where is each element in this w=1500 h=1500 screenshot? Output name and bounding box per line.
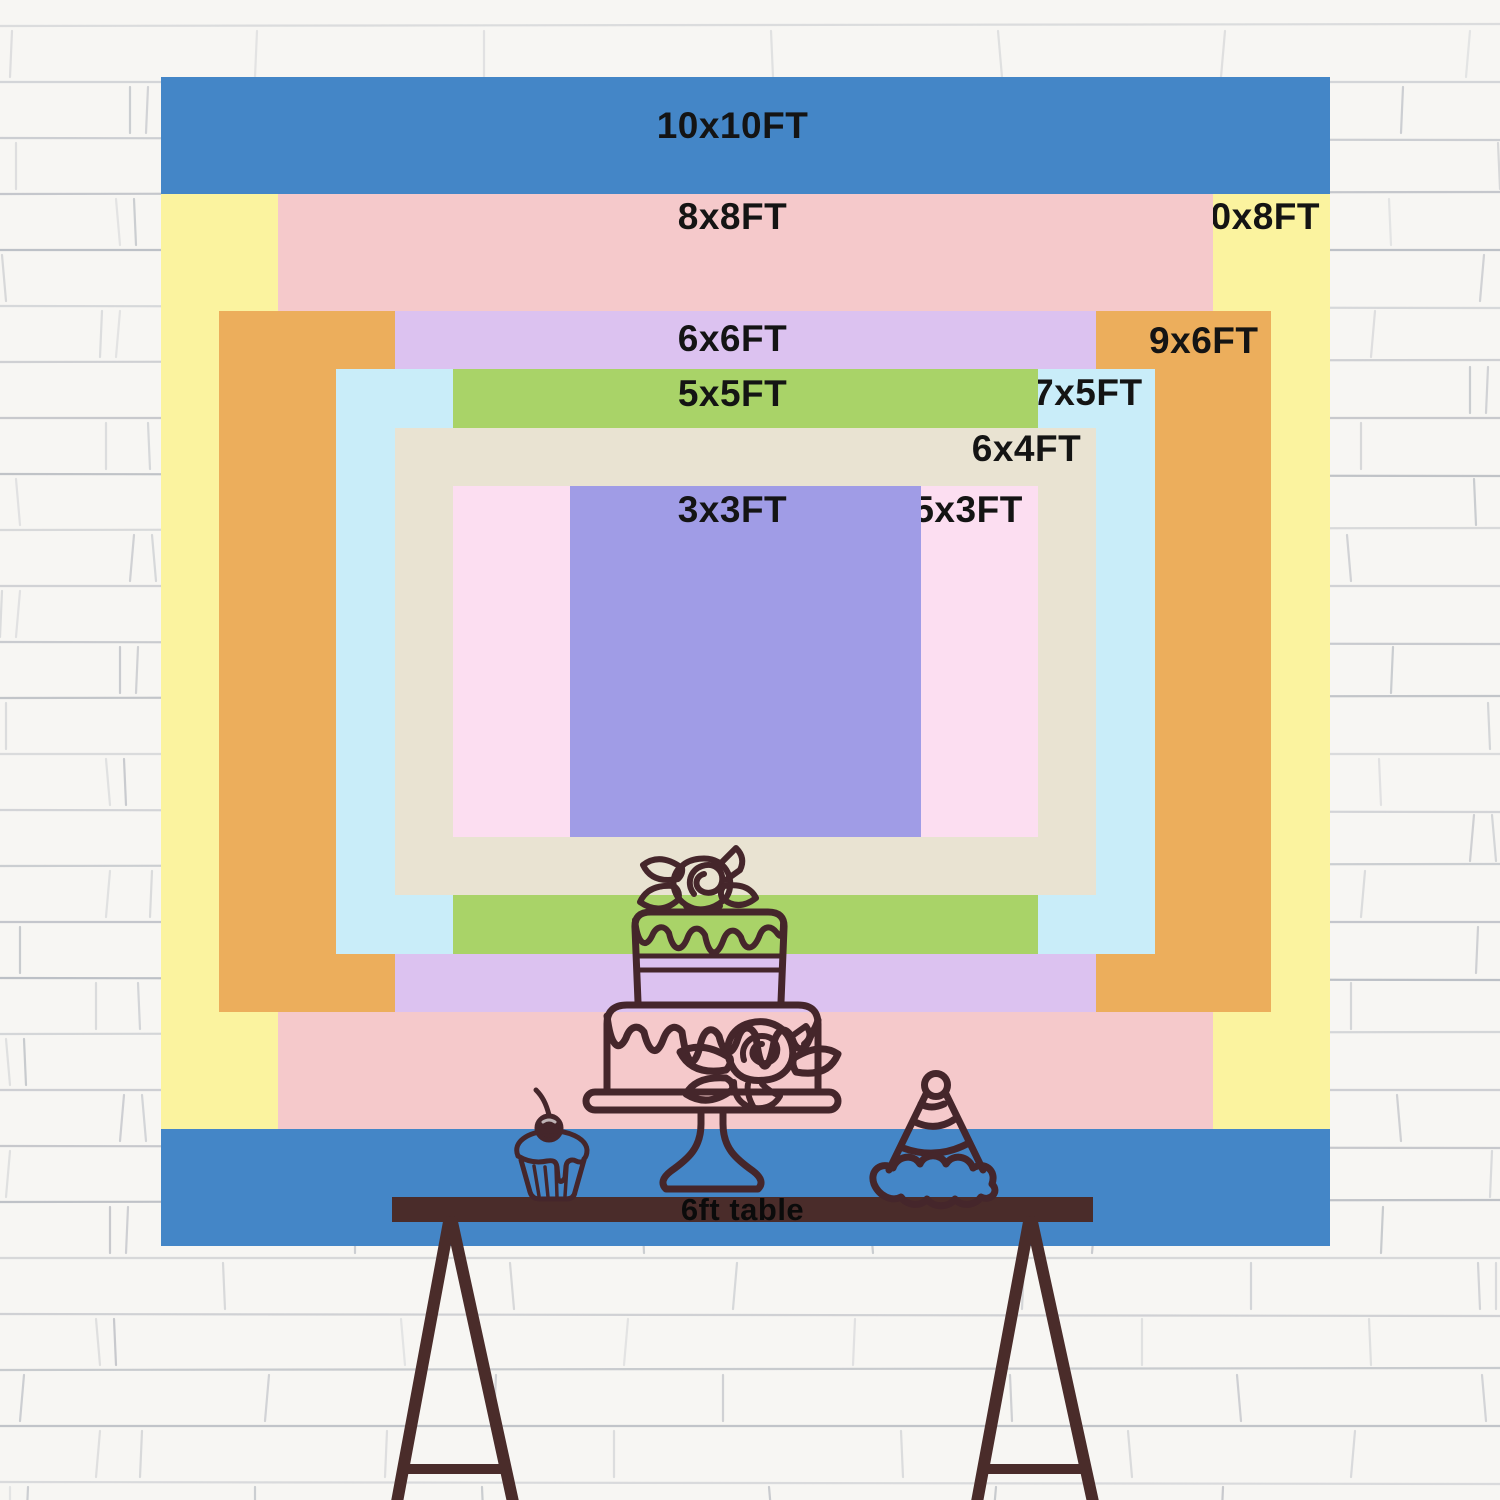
size-label: 3x3FT — [557, 490, 908, 530]
size-label: 8x8FT — [265, 197, 1200, 237]
backdrop-size-chart: 10x10FT10x8FT8x8FT9x6FT6x6FT7x5FT5x5FT6x… — [0, 0, 1500, 1500]
size-layer-3x3FT: 3x3FT — [570, 486, 921, 837]
table-label: 6ft table — [392, 1196, 1093, 1222]
size-label: 7x5FT — [1033, 373, 1142, 413]
size-label: 9x6FT — [1149, 321, 1258, 361]
size-label: 6x4FT — [972, 429, 1081, 469]
size-label: 6x6FT — [382, 319, 1083, 359]
size-label: 5x5FT — [440, 374, 1025, 414]
backdrop-size-chart-scene: 10x10FT10x8FT8x8FT9x6FT6x6FT7x5FT5x5FT6x… — [0, 0, 1500, 1500]
size-label: 5x3FT — [913, 490, 1022, 530]
size-label: 10x10FT — [148, 106, 1317, 146]
